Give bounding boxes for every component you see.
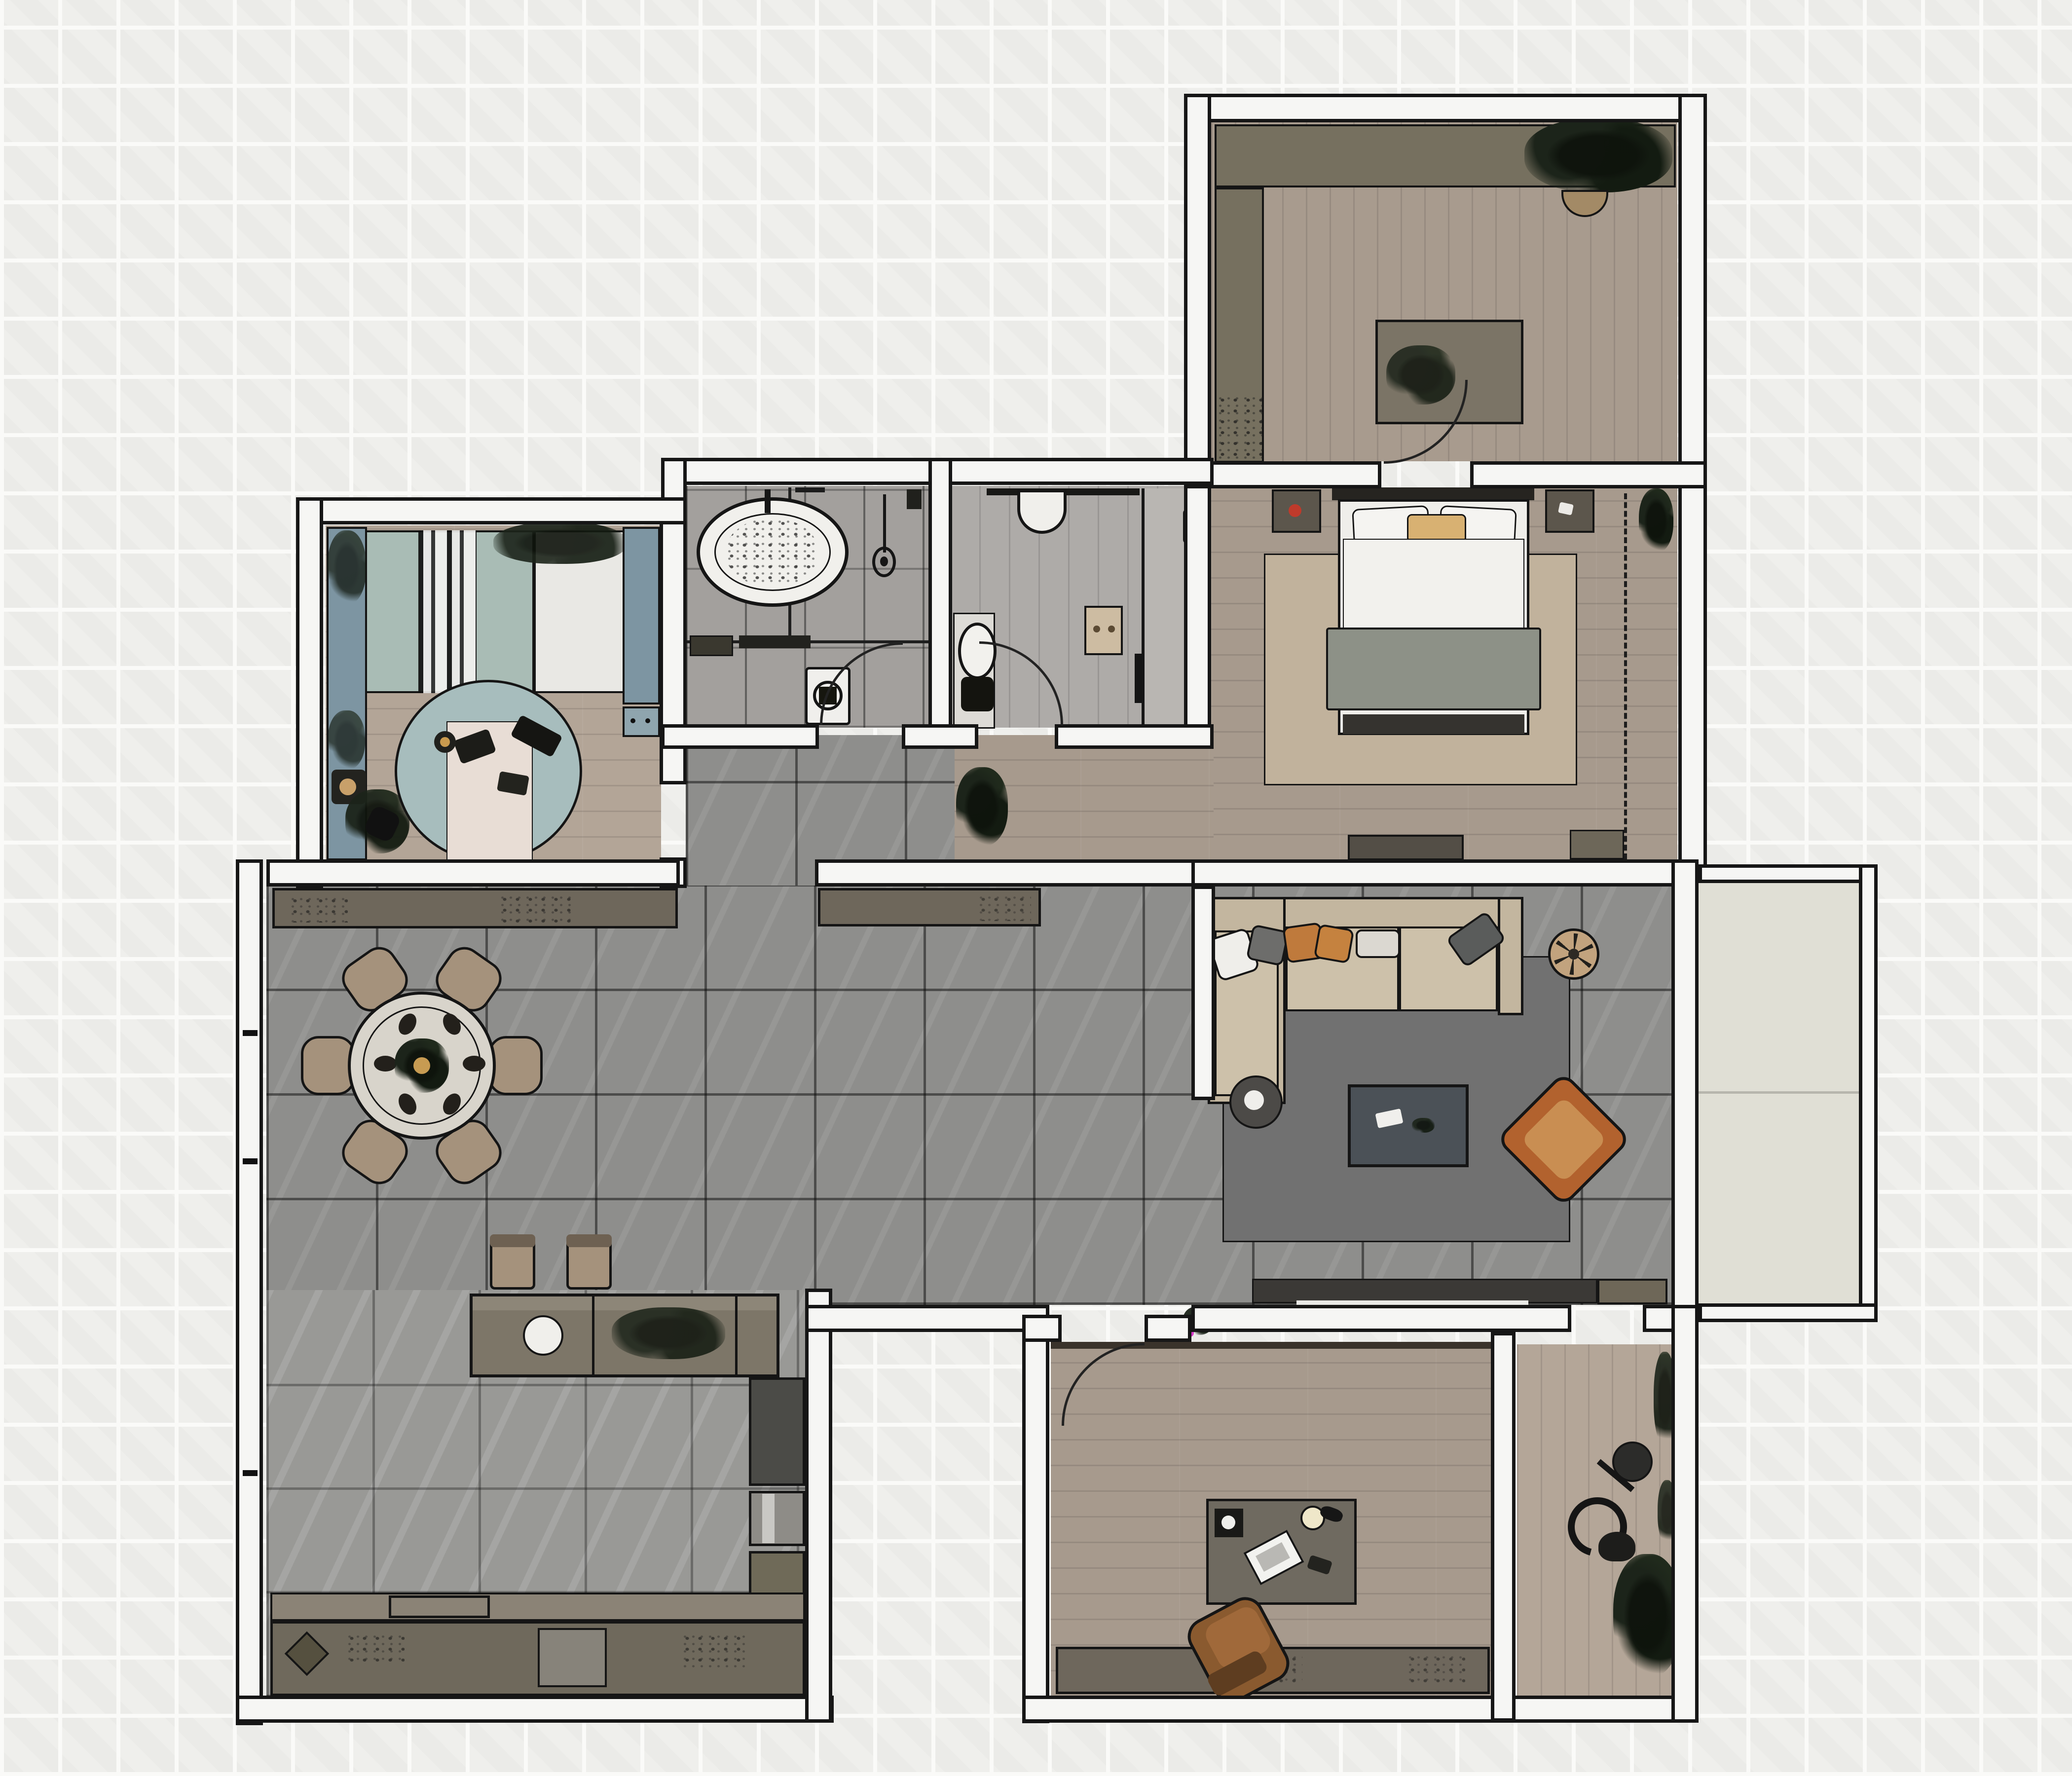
wall-stub-dining: [1191, 886, 1215, 1100]
window-tick-3: [243, 1470, 258, 1476]
wall-kitchen-right: [805, 1289, 832, 1723]
fruit-ball: [523, 1315, 563, 1356]
peninsula-sink-items: [612, 1307, 725, 1359]
bath-mat: [739, 635, 811, 648]
balcony-rail-right: [1859, 864, 1878, 1322]
wall-living-bottom-1: [1191, 1305, 1571, 1332]
dining-chair-4: [488, 1036, 543, 1095]
counter-clutter-1: [345, 1633, 405, 1663]
window-tick-1: [243, 1030, 258, 1036]
side-table-decor: [1244, 1090, 1264, 1110]
bath-vanity: [690, 635, 733, 656]
wall-bath-wc-divider: [928, 458, 952, 734]
decor-red-vase: [1289, 504, 1301, 517]
sideboard-decor-1: [289, 895, 348, 923]
wall-below-bath-1: [661, 724, 819, 749]
foot-bench: [1343, 714, 1524, 734]
wall-nursery-top: [296, 497, 687, 524]
oven-unit: [749, 1491, 805, 1546]
wall-left-long: [236, 859, 263, 1725]
wall-study-left: [1022, 1315, 1049, 1723]
wall-closet-left: [1184, 94, 1211, 735]
shower-rail: [883, 494, 886, 553]
tub-faucet: [765, 489, 771, 513]
coffee-table-decor: [1412, 1118, 1435, 1133]
fridge-tall-unit: [749, 1377, 805, 1486]
wall-dining-top-mid: [815, 859, 1217, 887]
sideboard-decor-2: [498, 894, 572, 924]
duvet: [1343, 539, 1524, 630]
plant-on-cabinet: [1524, 118, 1672, 192]
bath-shelf-items: [795, 487, 825, 492]
bed-headboard: [1332, 487, 1534, 500]
wall-right-lower: [1671, 1305, 1699, 1723]
tub-speckles: [725, 518, 819, 587]
balcony-floor: [1695, 883, 1860, 1305]
wall-right-living: [1671, 859, 1699, 1331]
balcony-divider: [1698, 1091, 1860, 1094]
wall-closet-bedroom-1: [1184, 461, 1381, 488]
tv-console: [1252, 1279, 1597, 1303]
wall-entry-partition: [1491, 1332, 1516, 1722]
cabinet-knob-2: [1108, 626, 1115, 632]
shower-head-dot: [880, 556, 888, 566]
peninsula-shelf: [473, 1296, 777, 1310]
kettle: [1598, 1532, 1635, 1561]
pillow-orange-2: [1313, 924, 1354, 963]
window-tick-2: [243, 1158, 258, 1164]
wall-below-bath-2: [902, 724, 978, 749]
wall-study-top-1: [1022, 1315, 1062, 1342]
toy-3-center: [440, 737, 450, 747]
wall-notch-top: [805, 1305, 1049, 1332]
toys-on-bed: [493, 522, 627, 564]
pantry-unit: [749, 1551, 805, 1596]
centerpiece-bowl: [413, 1057, 430, 1074]
pillow-dark-grey: [1246, 924, 1289, 966]
wall-dining-top-left: [266, 859, 680, 887]
counter-clutter-2: [681, 1633, 745, 1667]
wall-kitchen-bottom: [236, 1696, 834, 1723]
place-setting-1: [463, 1056, 485, 1072]
wall-living-top: [1191, 859, 1697, 887]
plant-basket-closet: [1216, 395, 1263, 461]
wc-wall-cabinet: [1084, 606, 1123, 655]
pillow-light: [1356, 929, 1400, 958]
drawer-knob-1: [630, 718, 635, 723]
bedroom-doormat: [1570, 830, 1624, 859]
wall-right-upper: [1678, 94, 1707, 883]
sideboard-decor-3: [977, 894, 1031, 921]
living-plant-leaves: [1553, 933, 1594, 975]
shower-handle: [1135, 654, 1143, 703]
place-setting-4: [374, 1056, 397, 1072]
balcony-rail-top: [1699, 864, 1876, 883]
balcony-rail-bottom: [1699, 1303, 1878, 1322]
drawer-knob-2: [645, 718, 650, 723]
peninsula-divider-1: [592, 1296, 594, 1374]
peninsula-divider-2: [735, 1296, 738, 1374]
floor-plan-canvas: [0, 0, 2072, 1776]
wall-closet-bedroom-2: [1470, 461, 1707, 488]
kitchen-sink: [389, 1595, 490, 1618]
cabinet-knob-1: [1093, 626, 1100, 632]
desk-clutter-mid: [328, 710, 365, 770]
wardrobe-dashed-line: [1624, 493, 1627, 859]
bar-stool-1-back: [490, 1234, 535, 1247]
desk-clutter-top: [328, 530, 366, 604]
wall-study-bottom: [1022, 1696, 1697, 1723]
bath-corner-item: [907, 489, 922, 509]
nursery-bed-birch-strip: [418, 530, 477, 693]
wall-below-wc: [1055, 724, 1214, 749]
desk-speaker-cone: [1221, 1516, 1235, 1529]
nursery-wardrobe: [623, 527, 660, 704]
wall-study-top-2: [1145, 1315, 1191, 1342]
wall-nursery-left: [296, 497, 323, 888]
coffee-table: [1348, 1084, 1469, 1167]
throw-blanket: [1326, 628, 1541, 710]
dining-chair-3: [301, 1036, 355, 1095]
bedroom-dresser: [1348, 835, 1464, 860]
wall-closet-top: [1184, 94, 1707, 122]
sofa-armrest-right: [1498, 897, 1523, 1015]
oven-stripe: [762, 1494, 775, 1543]
kitchen-counter-back: [270, 1592, 805, 1621]
plant-bedroom-corner: [1639, 488, 1673, 553]
plant-corridor: [956, 767, 1008, 846]
study-sideboard-decor-2: [1406, 1654, 1465, 1683]
bar-stool-2-back: [566, 1234, 612, 1247]
dishwasher: [538, 1628, 607, 1687]
nursery-drawer-unit: [623, 706, 660, 737]
corner-cabinet: [1597, 1279, 1667, 1304]
toy-basket-ball: [339, 778, 356, 795]
